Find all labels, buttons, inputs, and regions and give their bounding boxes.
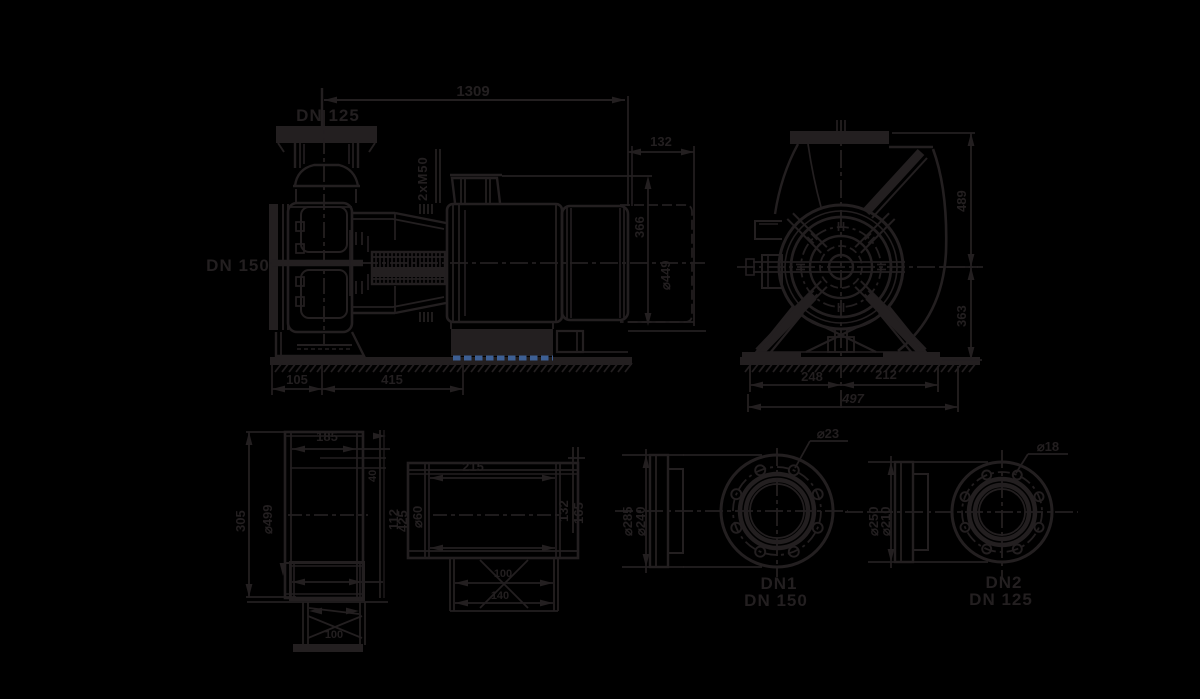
svg-text:⌀210: ⌀210 <box>878 506 893 536</box>
svg-text:489: 489 <box>954 190 969 212</box>
svg-text:366: 366 <box>632 216 647 238</box>
svg-text:⌀23: ⌀23 <box>817 426 839 441</box>
svg-text:⌀60: ⌀60 <box>410 506 425 528</box>
svg-text:215: 215 <box>462 459 484 474</box>
svg-text:425: 425 <box>395 510 410 532</box>
svg-text:497: 497 <box>841 391 864 406</box>
svg-text:40: 40 <box>367 470 379 482</box>
svg-text:185: 185 <box>316 429 338 444</box>
svg-text:2xM50: 2xM50 <box>415 156 430 201</box>
svg-text:DN 125: DN 125 <box>296 106 360 125</box>
svg-text:⌀18: ⌀18 <box>1037 439 1059 454</box>
svg-text:1309: 1309 <box>456 83 489 100</box>
svg-text:105: 105 <box>286 372 308 387</box>
svg-text:132: 132 <box>650 134 672 149</box>
svg-text:100: 100 <box>325 629 343 641</box>
svg-text:⌀449: ⌀449 <box>658 260 673 290</box>
svg-text:100: 100 <box>494 568 512 580</box>
svg-text:212: 212 <box>875 367 897 382</box>
svg-text:DN 150: DN 150 <box>744 591 808 610</box>
svg-text:DN 150: DN 150 <box>206 256 270 275</box>
svg-text:⌀499: ⌀499 <box>260 504 275 534</box>
svg-text:415: 415 <box>381 372 403 387</box>
svg-text:305: 305 <box>233 510 248 532</box>
svg-text:363: 363 <box>954 305 969 327</box>
svg-text:132: 132 <box>556 500 571 522</box>
svg-text:248: 248 <box>801 369 823 384</box>
svg-text:DN 125: DN 125 <box>969 590 1033 609</box>
svg-text:140: 140 <box>491 590 509 602</box>
